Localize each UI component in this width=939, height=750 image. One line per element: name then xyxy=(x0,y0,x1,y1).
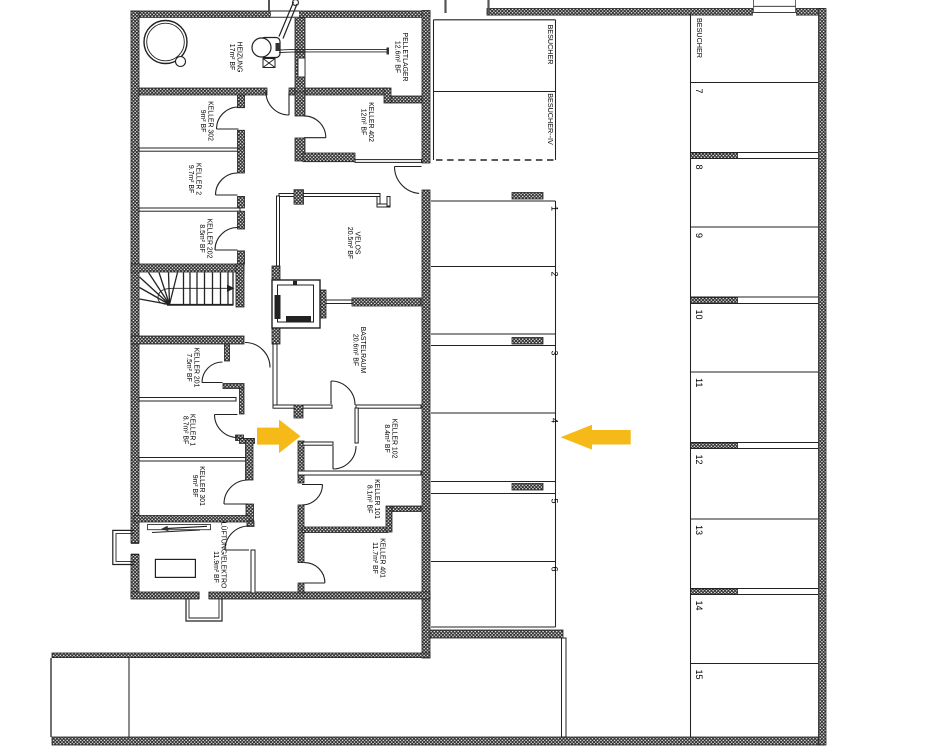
svg-text:7: 7 xyxy=(694,89,704,94)
svg-text:8.1m² BF: 8.1m² BF xyxy=(366,485,373,513)
svg-text:KELLER 1: KELLER 1 xyxy=(189,414,196,446)
svg-text:2: 2 xyxy=(550,272,560,277)
svg-text:8.5m² BF: 8.5m² BF xyxy=(198,224,205,252)
svg-text:20.6m² BF: 20.6m² BF xyxy=(352,334,359,366)
svg-text:17m² BF: 17m² BF xyxy=(228,44,235,70)
svg-text:9.7m² BF: 9.7m² BF xyxy=(187,165,194,193)
svg-text:HEIZUNG: HEIZUNG xyxy=(236,41,243,72)
svg-text:KELLER 402: KELLER 402 xyxy=(367,102,374,142)
svg-text:1: 1 xyxy=(550,206,560,211)
svg-text:LÜFTUNG/ELEKTRO: LÜFTUNG/ELEKTRO xyxy=(220,522,228,589)
svg-text:KELLER 301: KELLER 301 xyxy=(198,466,205,506)
svg-text:11.9m² BF: 11.9m² BF xyxy=(212,551,219,583)
svg-text:BASTELRAUM: BASTELRAUM xyxy=(359,327,366,374)
svg-text:12m² BF: 12m² BF xyxy=(360,109,367,135)
svg-text:12.6m² BF: 12.6m² BF xyxy=(394,41,401,73)
svg-text:11.7m² BF: 11.7m² BF xyxy=(371,542,378,574)
svg-text:15: 15 xyxy=(694,670,704,680)
svg-text:13: 13 xyxy=(694,525,704,535)
svg-text:KELLER 302: KELLER 302 xyxy=(207,101,214,141)
svg-text:8.7m² BF: 8.7m² BF xyxy=(182,416,189,444)
svg-text:10: 10 xyxy=(694,310,704,320)
svg-text:7.5m² BF: 7.5m² BF xyxy=(185,353,192,381)
svg-text:KELLER 2: KELLER 2 xyxy=(195,163,202,195)
svg-text:KELLER 101: KELLER 101 xyxy=(373,479,380,519)
svg-text:8.4m² BF: 8.4m² BF xyxy=(383,424,390,452)
svg-text:KELLER 401: KELLER 401 xyxy=(379,538,386,578)
svg-text:PELLETLAGER: PELLETLAGER xyxy=(401,32,408,81)
svg-text:BESUCHER: BESUCHER xyxy=(695,18,704,58)
svg-text:6: 6 xyxy=(550,567,560,572)
svg-text:3: 3 xyxy=(550,351,560,356)
svg-text:9m² BF: 9m² BF xyxy=(199,110,206,133)
svg-text:5: 5 xyxy=(550,499,560,504)
svg-text:14: 14 xyxy=(694,601,704,611)
svg-text:KELLER 201: KELLER 201 xyxy=(193,348,200,388)
svg-text:9m² BF: 9m² BF xyxy=(191,475,198,498)
svg-text:BESUCHER--IV: BESUCHER--IV xyxy=(546,93,555,145)
svg-text:VELOS: VELOS xyxy=(354,232,361,255)
svg-text:8: 8 xyxy=(694,165,704,170)
svg-text:9: 9 xyxy=(694,233,704,238)
svg-text:KELLER 202: KELLER 202 xyxy=(206,219,213,259)
svg-text:4: 4 xyxy=(550,418,560,423)
svg-text:BESUCHER: BESUCHER xyxy=(546,25,555,65)
svg-text:12: 12 xyxy=(694,455,704,465)
svg-text:20.5m² BF: 20.5m² BF xyxy=(346,227,353,259)
svg-text:11: 11 xyxy=(694,378,704,387)
svg-text:KELLER 102: KELLER 102 xyxy=(391,419,398,459)
